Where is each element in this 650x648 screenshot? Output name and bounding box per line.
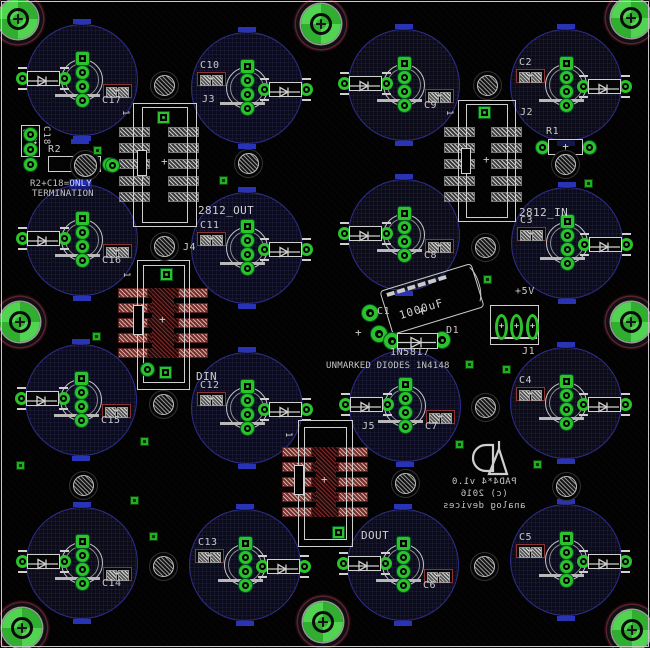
silk-tick [621,393,630,395]
silk-tick [381,573,390,575]
cap-body-mark [73,296,91,301]
diode-symbol-icon [28,558,58,570]
cap-pad-3[interactable] [76,563,89,576]
smd-cap-pad[interactable] [197,392,226,406]
r2-drill-hole[interactable] [74,154,97,177]
cap-pad-4[interactable] [560,417,573,430]
silk-tick [579,393,588,395]
silk-tick [18,550,27,552]
diode-footprint[interactable] [16,232,71,245]
cap-pad-2[interactable] [241,234,254,247]
mounting-hole-center [13,14,23,24]
silk-tick [18,248,27,250]
cap-pad-3[interactable] [560,560,573,573]
out-signal-label: 2812_OUT [198,204,254,217]
title-line-2: (c) 2016 [438,488,530,500]
diode-footprint[interactable] [258,243,313,256]
diode-footprint[interactable] [338,227,393,240]
drill-hole[interactable] [475,237,496,258]
c18-pad[interactable] [24,128,37,141]
cap-pad-3[interactable] [399,406,412,419]
cap-body-mark [395,141,413,146]
cap-pad-4[interactable] [76,254,89,267]
silk-tick [59,387,68,389]
diode-footprint[interactable] [16,72,71,85]
diode-footprint[interactable] [337,557,392,570]
cap-group-c6[interactable]: C6 [347,509,459,621]
cap-body-mark [558,182,576,187]
header-pin-pad[interactable] [333,527,344,538]
mounting-hole-center [316,19,326,29]
cap-body-mark [238,144,256,149]
diode-symbol-icon [350,80,380,92]
drill-hole[interactable] [555,154,576,175]
cap-pad-3[interactable] [241,88,254,101]
silk-tick [258,555,267,557]
mounting-hole[interactable] [296,0,346,49]
cap-pad-4[interactable] [241,262,254,275]
cap-body-mark [557,24,575,29]
mounting-hole-center [318,617,328,627]
c1-polarity-plus: + [355,326,362,339]
silk-tick [17,408,26,410]
cap-body-mark [238,27,256,32]
silk-tick [260,419,269,421]
j1-pin-pad[interactable] [495,314,508,340]
diode-footprint[interactable] [339,398,394,411]
diode-symbol-icon [350,230,380,242]
silk-tick [60,571,69,573]
cap-pad-1[interactable] [399,378,412,391]
cap-pad-1[interactable] [76,52,89,65]
unmarked-diodes-note: UNMARKED DIODES 1N4148 [326,361,450,371]
pcb-board: C17 C10 [0,0,650,648]
smd-cap-pad[interactable] [197,72,226,86]
smd-cap-pad[interactable] [195,549,224,563]
diode-symbol-icon [270,246,300,258]
d1-part-label: 1N5817 [390,347,430,358]
diode-symbol-icon [270,86,300,98]
smd-cap-pad[interactable] [516,544,545,558]
j1-pin-pad[interactable] [510,314,523,340]
cap-pad-3[interactable] [241,408,254,421]
cap-body-mark [557,459,575,464]
cap-body-mark [236,621,254,626]
silk-tick [302,238,311,240]
mounting-hole[interactable] [607,605,650,648]
silk-tick [302,78,311,80]
cap-body-mark [395,24,413,29]
cap-group-c2[interactable]: C2 [510,29,622,141]
silk-tick [341,393,350,395]
diode-body [269,82,302,97]
drill-hole[interactable] [475,397,496,418]
drill-hole[interactable] [556,476,577,497]
diode-symbol-icon [589,83,619,95]
mounting-hole[interactable] [0,603,47,648]
silk-tick [621,75,630,77]
diode-footprint[interactable] [577,555,632,568]
diode-symbol-icon [28,235,58,247]
silk-tick [340,72,349,74]
cap-pad-4[interactable] [76,577,89,590]
via-pad[interactable] [533,460,542,469]
smd-cap-pad[interactable] [517,227,546,241]
c1-crimp-arc [452,261,486,310]
cap-pad-4[interactable] [241,422,254,435]
header-notch [461,148,471,174]
pin1-marker: 1 [120,110,130,120]
cap-pad-1[interactable] [397,537,410,550]
header-pin-pad[interactable] [158,112,169,123]
silk-tick [18,67,27,69]
cap-pad-3[interactable] [398,235,411,248]
diode-footprint[interactable] [256,560,311,573]
header-pin-pad[interactable] [479,107,490,118]
diode-footprint[interactable] [577,398,632,411]
silk-tick [18,88,27,90]
silk-tick [382,72,391,74]
drill-hole[interactable] [474,556,495,577]
cap-body-mark [557,342,575,347]
j1-pin-pad[interactable] [526,314,539,340]
cap-group-c10[interactable]: C10 [191,32,303,144]
cap-pad-3[interactable] [560,403,573,416]
cap-body-mark [394,621,412,626]
cap-pad-2[interactable] [76,66,89,79]
cap-pad-4[interactable] [397,579,410,592]
title-line-1: PAD4*4 v1.0 [438,476,530,488]
via-pad[interactable] [16,461,25,470]
cap-body-mark [557,616,575,621]
diode-body [588,79,621,94]
drill-hole[interactable] [154,236,175,257]
silk-tick [339,552,348,554]
ref-label-c9: C9 [424,100,437,111]
silk-tick [260,259,269,261]
silk-tick [382,93,391,95]
cap-pad-4[interactable] [75,414,88,427]
cap-body-mark [72,339,90,344]
cap-pad-1[interactable] [76,212,89,225]
diode-body [350,397,383,412]
silk-tick [300,555,309,557]
pin1-marker: 1 [283,432,293,442]
cap-pad-2[interactable] [560,389,573,402]
silk-tick [579,571,588,573]
cap-pad-1[interactable] [560,57,573,70]
cap-group-c9[interactable]: C9 [348,29,460,141]
via-pad[interactable] [584,179,593,188]
silk-tick [383,393,392,395]
diode-footprint[interactable] [258,403,313,416]
cap-pad-3[interactable] [241,248,254,261]
ref-label-j2: J2 [520,107,546,119]
drill-hole[interactable] [153,394,174,415]
cap-pad-2[interactable] [399,392,412,405]
cap-pad-1[interactable] [76,535,89,548]
cap-pad-1[interactable] [560,532,573,545]
cap-group-c15[interactable]: C15 [25,344,137,456]
power-label: +5V [515,286,535,297]
header-pin-pad[interactable] [106,159,119,172]
smd-cap-pad[interactable] [516,69,545,83]
ref-label-c7: C7 [425,421,438,432]
pin1-marker: 1 [444,110,454,120]
cap-pad-2[interactable] [561,229,574,242]
cap-pad-3[interactable] [76,240,89,253]
header-pin-pad[interactable] [160,367,171,378]
silk-tick [260,238,269,240]
cap-pad-3[interactable] [561,243,574,256]
diode-symbol-icon [589,558,619,570]
silk-tick [60,248,69,250]
din-signal-label: DIN [196,370,217,383]
drill-hole[interactable] [154,75,175,96]
cap-pad-1[interactable] [241,220,254,233]
cap-group-c14[interactable]: C14 [26,507,138,619]
header-center-mark: + [321,473,331,487]
silk-tick [60,227,69,229]
via-pad[interactable] [455,440,464,449]
cap-pad-2[interactable] [241,394,254,407]
silk-tick [579,414,588,416]
cap-pad-1[interactable] [75,372,88,385]
cap-pad-4[interactable] [560,574,573,587]
drill-hole[interactable] [73,475,94,496]
silk-tick [302,99,311,101]
smd-cap-pad[interactable] [516,387,545,401]
c18-pad[interactable] [24,143,37,156]
silk-tick [340,222,349,224]
diode-body [589,237,622,252]
cap-body-mark [558,299,576,304]
cap-pad-3[interactable] [239,565,252,578]
drill-hole[interactable] [395,473,416,494]
silk-tick [17,387,26,389]
cap-body-mark [557,499,575,504]
diode-symbol-icon [351,401,381,413]
cap-pad-3[interactable] [398,85,411,98]
ref-label-c15: C15 [101,415,121,426]
cap-body-mark [236,504,254,509]
resistor-r1-body[interactable]: + [548,139,583,155]
mounting-hole-center [17,623,27,633]
ref-label-j5: J5 [362,421,388,433]
via-pad[interactable] [149,532,158,541]
cap-pad-1[interactable] [398,207,411,220]
header-notch [137,150,147,176]
cap-pad-1[interactable] [241,380,254,393]
silk-tick [60,88,69,90]
cap-pad-3[interactable] [76,80,89,93]
diode-body [269,242,302,257]
r2-pad[interactable] [24,158,37,171]
ref-label-c17: C17 [102,95,122,106]
silk-tick [60,67,69,69]
via-pad[interactable] [483,275,492,284]
cap-body-mark [238,347,256,352]
cap-pad-1[interactable] [398,57,411,70]
diode-symbol-icon [268,563,298,575]
cap-body-mark [396,462,414,467]
ref-label-c16: C16 [102,255,122,266]
ref-label-c2: C2 [519,57,532,68]
diode-symbol-icon [589,401,619,413]
silk-tick [340,93,349,95]
cap-pad-4[interactable] [561,257,574,270]
diode-footprint[interactable] [258,83,313,96]
ref-label-c6: C6 [423,580,436,591]
header-pin-pad[interactable] [141,363,154,376]
header-center-mark: + [483,153,493,167]
cap-pad-2[interactable] [398,221,411,234]
cap-pad-4[interactable] [399,420,412,433]
cap-pad-3[interactable] [560,85,573,98]
cap-body-mark [73,502,91,507]
ref-label-j1: J1 [522,346,535,357]
cap-body-mark [73,619,91,624]
diode-symbol-icon [28,75,58,87]
cap-body-mark [238,304,256,309]
cap-body-mark [395,174,413,179]
diode-symbol-icon [27,395,57,407]
via-pad[interactable] [219,176,228,185]
ref-label-c4: C4 [519,375,532,386]
mounting-hole-center [627,625,637,635]
ref-label-c11: C11 [200,220,220,231]
diode-footprint[interactable] [15,392,70,405]
cap-body-mark [73,19,91,24]
via-pad[interactable] [502,365,511,374]
silk-tick [60,550,69,552]
silk-tick [18,227,27,229]
mounting-hole-center [626,13,636,23]
r1-pad[interactable] [583,141,596,154]
ref-label-c18: C18 [41,126,51,145]
ref-label-c10: C10 [200,60,220,71]
silk-tick [580,254,589,256]
silk-tick [382,243,391,245]
diode-footprint[interactable] [16,555,71,568]
silk-tick [622,254,631,256]
cap-pad-4[interactable] [239,579,252,592]
silk-tick [621,96,630,98]
ref-label-d1: D1 [446,325,459,336]
cap-pad-3[interactable] [397,565,410,578]
diode-body [269,402,302,417]
silk-tick [383,414,392,416]
via-pad[interactable] [93,146,102,155]
ref-label-r1: R1 [546,126,559,137]
analog-devices-logo-icon [463,441,507,477]
cap-pad-4[interactable] [241,102,254,115]
ref-label-c5: C5 [519,532,532,543]
cap-body-mark [72,456,90,461]
pin1-marker: 1 [121,272,131,282]
via-pad[interactable] [140,437,149,446]
diode-footprint[interactable] [577,80,632,93]
cap-pad-2[interactable] [397,551,410,564]
cap-pad-2[interactable] [76,549,89,562]
cap-pad-4[interactable] [76,94,89,107]
header-center-mark: + [159,313,169,327]
mounting-hole[interactable] [298,597,348,647]
c1-pad[interactable] [362,305,378,321]
ref-label-r2: R2 [48,144,61,155]
cap-group-c5[interactable]: C5 [510,504,622,616]
silk-tick [340,243,349,245]
mounting-hole[interactable] [606,297,650,347]
cap-pad-1[interactable] [239,537,252,550]
termination-note-prefix: R2+C18= [30,179,69,189]
cap-pad-2[interactable] [560,71,573,84]
diode-footprint[interactable] [338,77,393,90]
diode-body [27,231,60,246]
drill-hole[interactable] [238,153,259,174]
cap-pad-3[interactable] [75,400,88,413]
diode-body [27,554,60,569]
cap-pad-4[interactable] [398,99,411,112]
diode-body [588,554,621,569]
diode-body [27,71,60,86]
cap-pad-2[interactable] [398,71,411,84]
in-signal-label: 2812_IN [519,206,568,219]
silk-tick [339,573,348,575]
diode-symbol-icon [349,560,379,572]
cap-pad-4[interactable] [560,99,573,112]
diode-footprint[interactable] [578,238,633,251]
via-pad[interactable] [92,332,101,341]
drill-hole[interactable] [153,556,174,577]
header-pin-pad[interactable] [161,269,172,280]
cap-group-c13[interactable]: C13 [189,509,301,621]
silk-tick [580,233,589,235]
cap-pad-1[interactable] [560,375,573,388]
cap-pad-1[interactable] [241,60,254,73]
via-pad[interactable] [130,496,139,505]
drill-hole[interactable] [477,75,498,96]
cap-pad-2[interactable] [241,74,254,87]
via-pad[interactable] [465,360,474,369]
cap-group-c4[interactable]: C4 [510,347,622,459]
cap-body-mark [238,464,256,469]
termination-note-highlight: ONLY [69,179,91,189]
cap-pad-4[interactable] [398,249,411,262]
silk-tick [260,99,269,101]
silk-tick [260,78,269,80]
silk-tick [302,398,311,400]
ref-label-c14: C14 [102,578,122,589]
cap-pad-2[interactable] [76,226,89,239]
silk-tick [621,550,630,552]
termination-note-line2: TERMINATION [32,189,94,199]
diode-body [348,556,381,571]
cap-pad-2[interactable] [239,551,252,564]
title-block: PAD4*4 v1.0 (c) 2016 analog devices [438,476,530,512]
silk-tick [621,571,630,573]
silk-tick [258,576,267,578]
silk-tick [18,571,27,573]
cap-pad-2[interactable] [75,386,88,399]
cap-group-c3[interactable]: C3 [511,187,623,299]
mounting-hole[interactable] [0,297,45,347]
dout-signal-label: DOUT [361,529,389,542]
diode-body [349,76,382,91]
cap-pad-2[interactable] [560,546,573,559]
diode-body [349,226,382,241]
ref-label-c1: C1 [377,306,390,317]
